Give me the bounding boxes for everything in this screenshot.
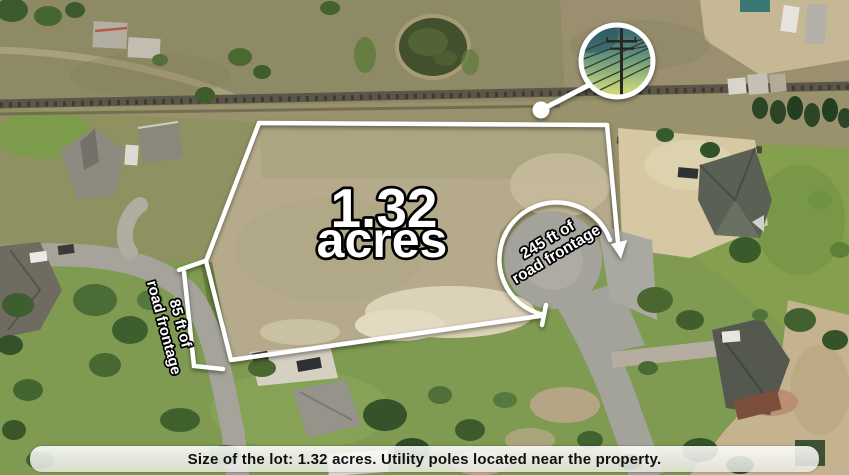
caption-bar: Size of the lot: 1.32 acres. Utility pol…	[30, 446, 819, 472]
pond	[395, 14, 471, 80]
caption-text: Size of the lot: 1.32 acres. Utility pol…	[188, 451, 662, 468]
aerial-photo: 1.32 acres 245 ft of road frontage 85 ft…	[0, 0, 849, 475]
callout-dot	[533, 102, 550, 119]
lot-size-unit: acres	[317, 212, 448, 268]
aerial-property-screenshot: 1.32 acres 245 ft of road frontage 85 ft…	[0, 0, 849, 475]
